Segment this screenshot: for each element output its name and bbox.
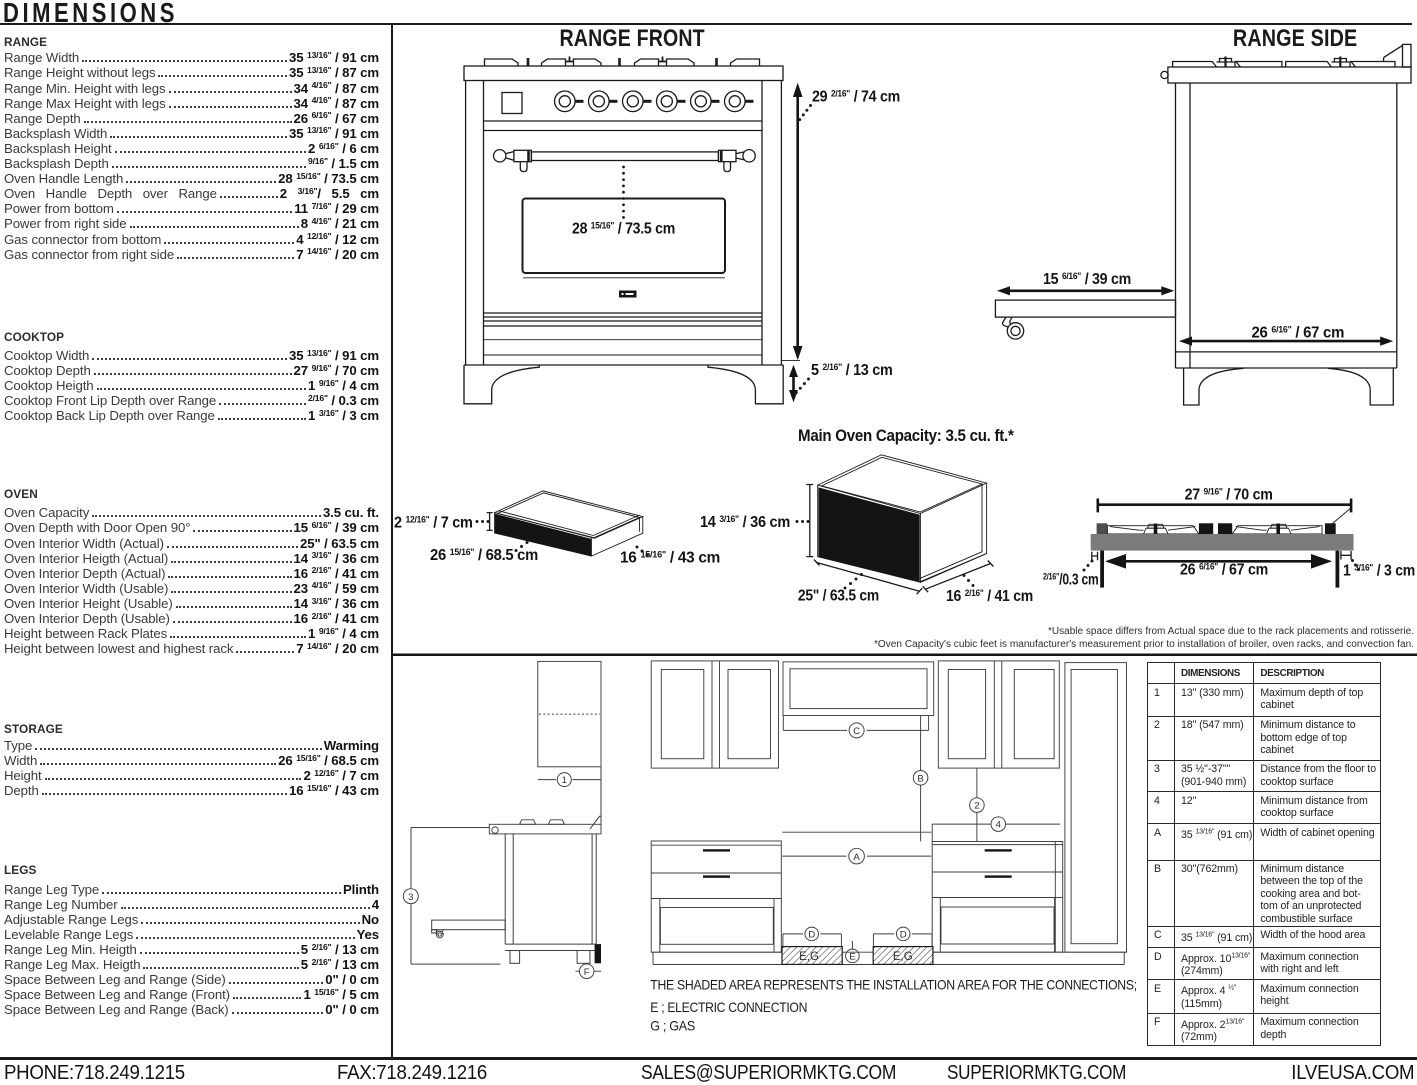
svg-text:2 12/16" / 7 cm: 2 12/16" / 7 cm: [394, 515, 473, 532]
svg-text:E: E: [849, 951, 855, 962]
svg-text:RANGE SIDE: RANGE SIDE: [1233, 25, 1358, 52]
svg-text:Main Oven Capacity: 3.5 cu. ft: Main Oven Capacity: 3.5 cu. ft.*: [798, 426, 1014, 445]
svg-text:16 15/16" / 43 cm: 16 15/16" / 43 cm: [620, 550, 720, 567]
svg-text:16 2/16" / 41 cm: 16 2/16" / 41 cm: [946, 588, 1033, 605]
svg-text:E ; ELECTRIC CONNECTION: E ; ELECTRIC CONNECTION: [650, 999, 807, 1015]
svg-text:E,G: E,G: [893, 951, 913, 963]
svg-text:A: A: [853, 852, 860, 863]
svg-text:2/16"/0.3 cm: 2/16"/0.3 cm: [1043, 572, 1099, 589]
svg-text:1: 1: [562, 775, 567, 786]
svg-text:4: 4: [996, 820, 1002, 831]
svg-text:5 2/16" / 13 cm: 5 2/16" / 13 cm: [811, 362, 893, 379]
svg-text:RANGE FRONT: RANGE FRONT: [560, 25, 705, 52]
svg-text:G ; GAS: G ; GAS: [650, 1018, 695, 1034]
svg-text:*Oven Capacity's cubic feet is: *Oven Capacity's cubic feet is manufactu…: [874, 639, 1414, 650]
svg-text:D: D: [900, 929, 907, 940]
svg-text:D: D: [808, 929, 815, 940]
svg-text:27 9/16" / 70 cm: 27 9/16" / 70 cm: [1185, 487, 1273, 504]
svg-text:C: C: [853, 726, 860, 737]
svg-text:14 3/16" / 36 cm: 14 3/16" / 36 cm: [700, 514, 790, 531]
svg-text:1 3/16" / 3 cm: 1 3/16" / 3 cm: [1343, 563, 1415, 580]
svg-text:2: 2: [974, 801, 979, 812]
svg-text:E,G: E,G: [799, 951, 819, 963]
svg-text:29 2/16" / 74 cm: 29 2/16" / 74 cm: [812, 89, 900, 106]
svg-text:THE SHADED AREA REPRESENTS THE: THE SHADED AREA REPRESENTS THE INSTALLAT…: [650, 977, 1137, 993]
svg-text:26 6/16" / 67 cm: 26 6/16" / 67 cm: [1180, 561, 1268, 578]
svg-text:26 15/16" / 68.5 cm: 26 15/16" / 68.5 cm: [430, 547, 538, 564]
svg-text:F: F: [584, 967, 590, 978]
svg-text:*Usable space differs from Act: *Usable space differs from Actual space …: [1048, 626, 1414, 637]
svg-text:28 15/16" / 73.5 cm: 28 15/16" / 73.5 cm: [572, 221, 675, 238]
svg-text:B: B: [917, 773, 923, 784]
svg-text:25" / 63.5 cm: 25" / 63.5 cm: [798, 588, 879, 605]
svg-text:3: 3: [408, 892, 413, 903]
svg-text:15 6/16" / 39 cm: 15 6/16" / 39 cm: [1043, 271, 1131, 288]
svg-text:26 6/16" / 67 cm: 26 6/16" / 67 cm: [1252, 325, 1345, 342]
